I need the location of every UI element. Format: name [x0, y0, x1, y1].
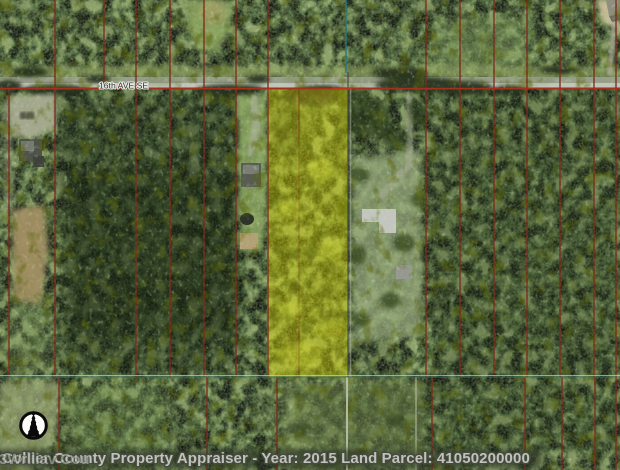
svg-text:3Wrlliav Cou: 3Wrlliav Cou [0, 451, 90, 468]
svg-text:16th AVE SE: 16th AVE SE [99, 80, 148, 90]
